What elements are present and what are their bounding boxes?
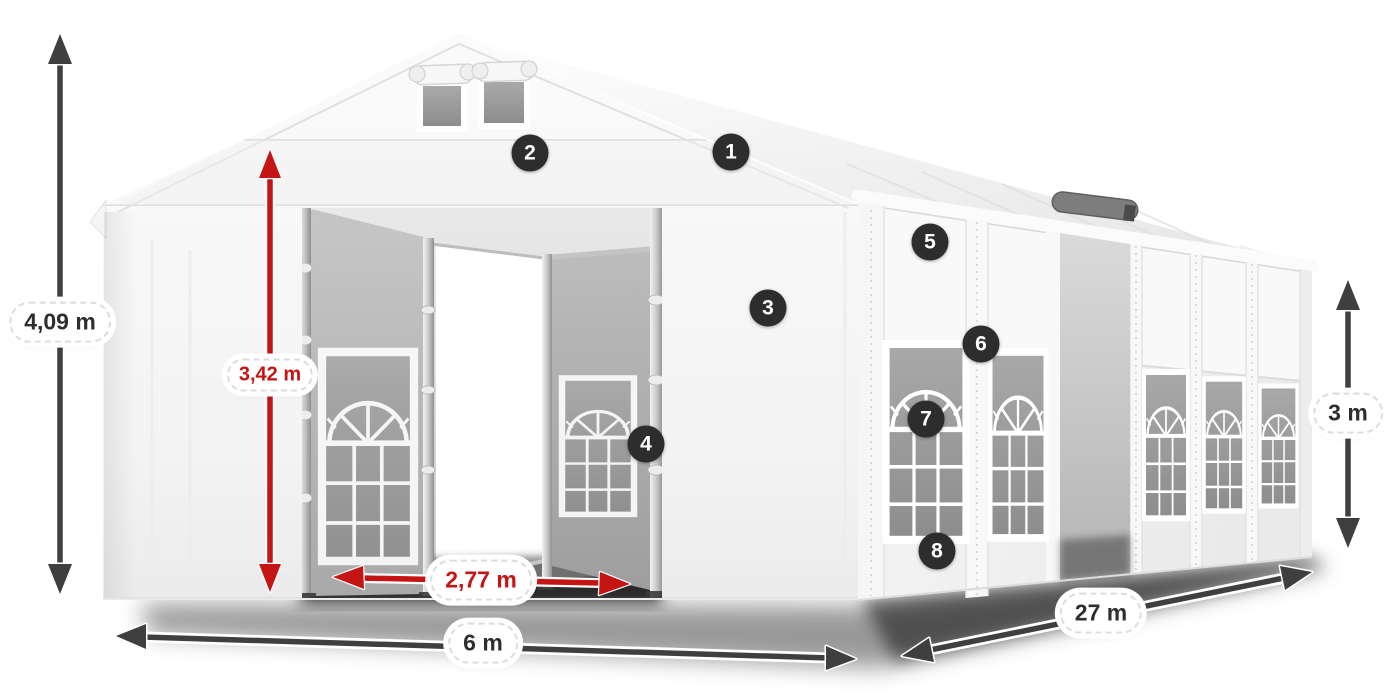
tent-dimensions-diagram: 4,09 m 3,42 m 2,77 m 6 m 27 m 3 m 1 2 3 … — [0, 0, 1400, 700]
open-doorway-gap — [436, 244, 544, 584]
gable-vent-left — [409, 64, 476, 132]
callout-badge-2: 2 — [512, 135, 549, 172]
door-window-print — [562, 378, 634, 514]
entrance-height-label: 3,42 m — [227, 359, 313, 392]
entrance-width-label: 2,77 m — [430, 560, 532, 601]
side-window-3 — [1144, 372, 1188, 518]
callout-badge-4: 4 — [628, 426, 665, 463]
side-window-4 — [1204, 379, 1244, 511]
entrance-right-door — [552, 250, 650, 590]
callout-badge-7: 7 — [908, 401, 945, 438]
side-window-5 — [1260, 386, 1297, 506]
gable-vent-right — [472, 61, 537, 129]
callout-badge-6: 6 — [963, 326, 1000, 363]
tent-illustration — [0, 0, 1400, 700]
callout-badge-5: 5 — [912, 224, 949, 261]
callout-badge-8: 8 — [919, 533, 956, 570]
length-label: 27 m — [1060, 593, 1142, 634]
side-window-1 — [886, 344, 966, 540]
side-height-label: 3 m — [1313, 393, 1383, 434]
side-window-2 — [990, 352, 1046, 538]
door-window-print — [322, 352, 414, 561]
total-height-label: 4,09 m — [9, 302, 111, 343]
side-entrance-opening — [1051, 191, 1139, 581]
callout-badge-1: 1 — [713, 134, 750, 171]
front-width-label: 6 m — [448, 623, 518, 664]
entrance-interior — [294, 207, 667, 600]
callout-badge-3: 3 — [750, 290, 787, 327]
entrance-left-door — [311, 213, 423, 596]
